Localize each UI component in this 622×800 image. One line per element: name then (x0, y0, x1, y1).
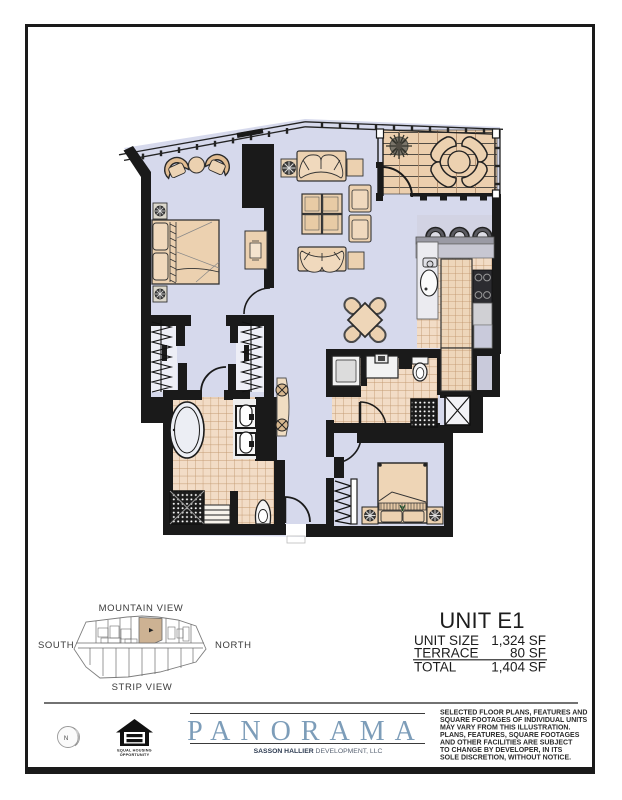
svg-text:TO CHANGE BY DEVELOPER, IN ITS: TO CHANGE BY DEVELOPER, IN ITS (440, 747, 563, 754)
svg-text:STRIP VIEW: STRIP VIEW (112, 682, 173, 693)
svg-text:80 SF: 80 SF (510, 646, 546, 661)
svg-text:SASSON HALLIER DEVELOPMENT, LL: SASSON HALLIER DEVELOPMENT, LLC (254, 748, 383, 755)
svg-text:SOUTH: SOUTH (38, 640, 74, 651)
svg-text:1,404 SF: 1,404 SF (491, 660, 546, 675)
svg-text:SOLE DISCRETION, WITHOUT NOTIC: SOLE DISCRETION, WITHOUT NOTICE. (440, 755, 571, 762)
svg-text:MOUNTAIN VIEW: MOUNTAIN VIEW (99, 603, 184, 614)
svg-text:OPPORTUNITY: OPPORTUNITY (120, 753, 150, 757)
svg-text:NORTH: NORTH (215, 640, 252, 651)
svg-text:PLANS, FEATURES, SQUARE FOOTAG: PLANS, FEATURES, SQUARE FOOTAGES (440, 732, 580, 739)
svg-text:TOTAL: TOTAL (414, 660, 457, 675)
svg-text:TERRACE: TERRACE (414, 646, 479, 661)
svg-text:PANORAMA: PANORAMA (187, 716, 425, 747)
svg-text:MAY VARY FROM THIS ILLUSTRATIO: MAY VARY FROM THIS ILLUSTRATION. (440, 725, 570, 732)
svg-text:EQUAL HOUSING: EQUAL HOUSING (117, 749, 152, 753)
svg-text:AND OTHER FACILITIES ARE SUBJE: AND OTHER FACILITIES ARE SUBJECT (440, 740, 573, 747)
svg-text:SQUARE FOOTAGES OF INDIVIDUAL: SQUARE FOOTAGES OF INDIVIDUAL UNITS (440, 717, 587, 724)
svg-text:N: N (64, 736, 68, 742)
svg-text:SELECTED FLOOR PLANS, FEATURES: SELECTED FLOOR PLANS, FEATURES AND (440, 710, 587, 717)
svg-text:UNIT E1: UNIT E1 (439, 608, 524, 633)
